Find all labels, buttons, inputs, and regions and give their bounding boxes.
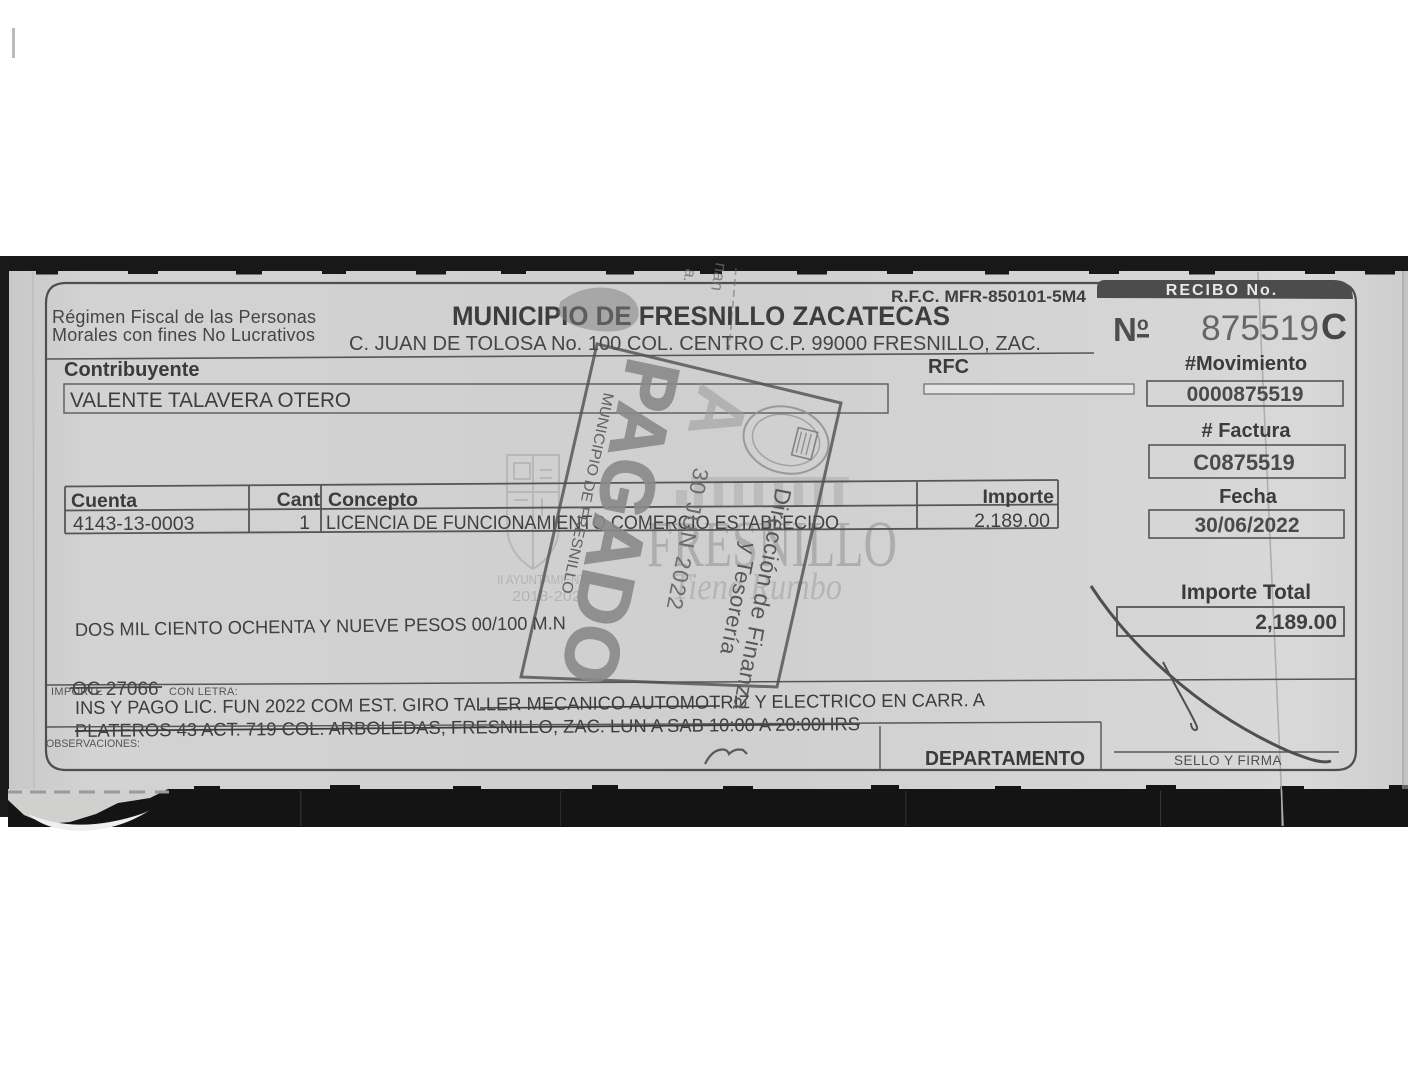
svg-text:C0875519: C0875519 xyxy=(1193,450,1295,475)
svg-text:RECIBO No.: RECIBO No. xyxy=(1166,282,1278,299)
svg-text:Contribuyente: Contribuyente xyxy=(64,359,200,381)
svg-text:Importe Total: Importe Total xyxy=(1181,581,1311,604)
svg-text:1: 1 xyxy=(299,512,310,534)
svg-text:C. JUAN DE TOLOSA No. 100 CO: C. JUAN DE TOLOSA No. 100 COL. CENTRO C.… xyxy=(349,333,1041,355)
svg-text:875519: 875519 xyxy=(1201,309,1319,348)
svg-text:Importe: Importe xyxy=(982,486,1054,508)
svg-text:2,189.00: 2,189.00 xyxy=(1255,611,1337,634)
svg-text:Cant: Cant xyxy=(277,489,321,511)
svg-text:Régimen Fiscal de las Personas: Régimen Fiscal de las Personas xyxy=(52,307,316,327)
svg-text:4143-13-0003: 4143-13-0003 xyxy=(73,513,194,535)
svg-text:2,189.00: 2,189.00 xyxy=(974,510,1050,532)
svg-text:o: o xyxy=(1137,314,1149,335)
svg-text:DEPARTAMENTO: DEPARTAMENTO xyxy=(925,748,1085,770)
svg-text:Concepto: Concepto xyxy=(328,489,418,511)
svg-text:0000875519: 0000875519 xyxy=(1187,383,1304,406)
svg-text:N: N xyxy=(1113,311,1137,348)
svg-text:R.F.C. MFR-850101-5M4: R.F.C. MFR-850101-5M4 xyxy=(891,287,1087,306)
svg-text:SELLO Y FIRMA: SELLO Y FIRMA xyxy=(1174,753,1282,768)
svg-text:Morales con fines No Lucrativo: Morales con fines No Lucrativos xyxy=(52,325,315,345)
svg-text:30/06/2022: 30/06/2022 xyxy=(1194,514,1299,537)
svg-text:VALENTE TALAVERA OTERO: VALENTE TALAVERA OTERO xyxy=(70,389,351,412)
svg-text:RFC: RFC xyxy=(928,356,969,378)
svg-text:OBSERVACIONES:: OBSERVACIONES: xyxy=(46,738,140,750)
svg-text:MUNICIPIO DE FRESNILLO ZACATEC: MUNICIPIO DE FRESNILLO ZACATECAS xyxy=(452,301,950,331)
svg-text:C: C xyxy=(1321,306,1347,347)
svg-text:Fecha: Fecha xyxy=(1219,486,1278,508)
svg-text:# Factura: # Factura xyxy=(1202,420,1292,442)
svg-text:Cuenta: Cuenta xyxy=(71,490,137,512)
svg-text:#Movimiento: #Movimiento xyxy=(1185,353,1307,375)
